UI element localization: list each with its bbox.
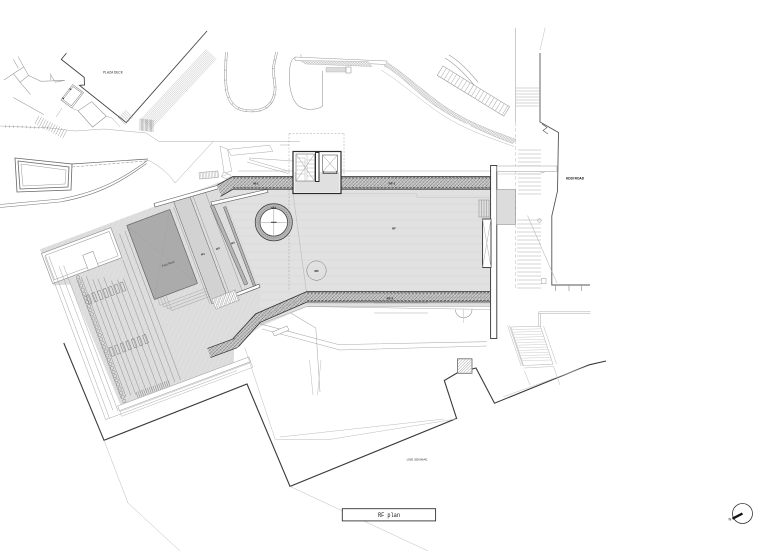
- svg-text:RF: RF: [392, 227, 396, 231]
- svg-text:W-1: W-1: [253, 182, 259, 186]
- svg-text:SK1: SK1: [271, 206, 277, 210]
- svg-text:N: N: [729, 517, 732, 522]
- svg-text:RF-2: RF-2: [387, 297, 394, 301]
- svg-text:RF-1: RF-1: [389, 182, 396, 186]
- svg-text:LINE SEKIMAE: LINE SEKIMAE: [407, 458, 428, 462]
- svg-text:PLAZA DECK: PLAZA DECK: [103, 71, 124, 75]
- svg-text:KDDI ROAD: KDDI ROAD: [566, 177, 585, 181]
- svg-text:RD: RD: [314, 269, 318, 273]
- svg-text:RF plan: RF plan: [378, 512, 400, 519]
